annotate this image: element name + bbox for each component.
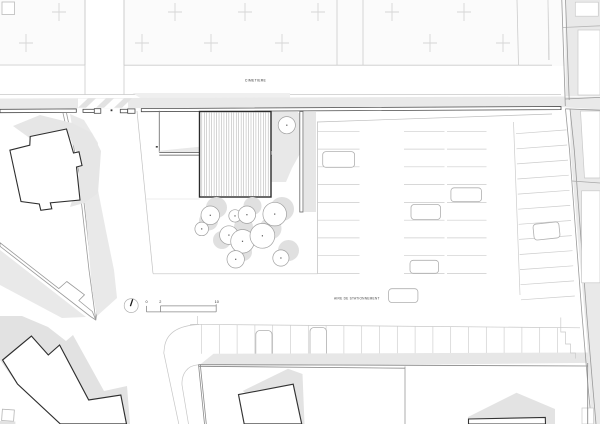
svg-text:CIMETIERE: CIMETIERE: [245, 79, 267, 83]
svg-text:10: 10: [215, 300, 219, 304]
svg-text:2: 2: [159, 300, 161, 304]
svg-text:0: 0: [145, 300, 147, 304]
svg-text:AIRE DE STATIONNEMENT: AIRE DE STATIONNEMENT: [334, 297, 380, 301]
